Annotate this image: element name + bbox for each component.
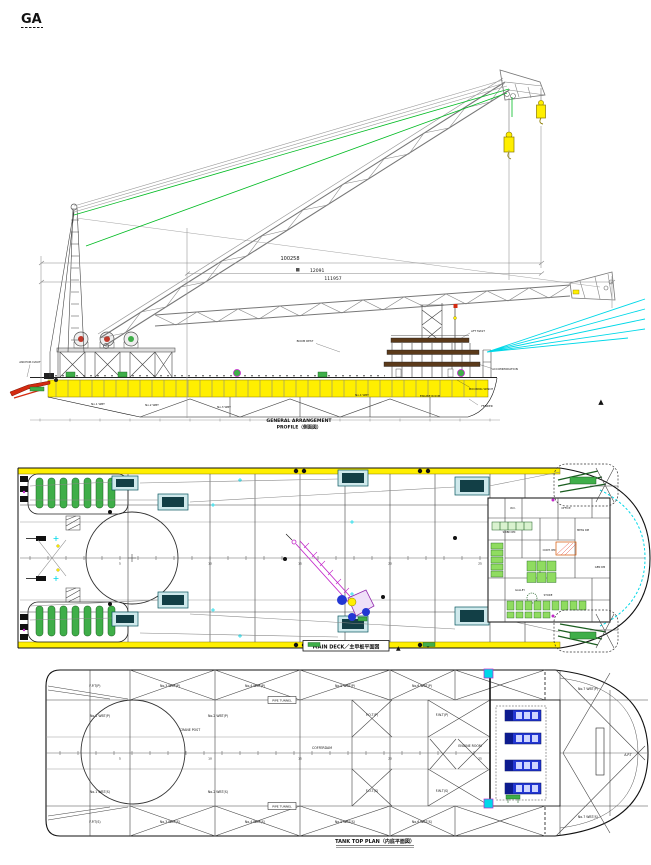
callout-anchor: ANCHOR DAVIT	[19, 360, 41, 364]
genset-icon	[505, 760, 541, 771]
room-label: OFFICE	[561, 506, 571, 510]
station-number: 10	[208, 757, 212, 761]
profile-caption-line2: PROFILE（側面図）	[277, 424, 322, 431]
winch-unit-icon	[112, 476, 138, 490]
tank-label: No.7 WBT(P)	[578, 687, 598, 691]
tank-label: No.3 WBT(S)	[160, 820, 180, 824]
callout-accom: ACCOMMODATION	[492, 367, 518, 371]
tank-label: No.1 WBT(S)	[90, 790, 110, 794]
hull-label-5: ENGINE ROOM	[420, 394, 441, 398]
room-label: W.C.	[510, 506, 516, 510]
tank-label: F.W.T(P)	[436, 713, 449, 717]
dim-overall-label: 111957	[324, 276, 341, 282]
tank-label: ENGINE ROOM	[458, 744, 481, 748]
dim-mid-label: 12091	[310, 268, 324, 274]
callout-fender: FENDER	[481, 404, 492, 408]
vent-box-icon	[484, 799, 493, 808]
tank-label: F.W.T(S)	[436, 789, 449, 793]
hull-label-3: No.3 WBT	[217, 405, 231, 409]
callout-winch: MOORING WINCH	[469, 387, 493, 391]
tank-label: CRANE POST	[180, 728, 200, 732]
station-number: 20	[388, 562, 392, 566]
winch-unit-icon	[338, 470, 368, 486]
hull-label-1: No.1 WBT	[91, 402, 105, 406]
callout-mast: AFT MAST	[471, 329, 485, 333]
ga-drawing-canvas: GA	[0, 0, 651, 865]
warning-triangle-icon: ▲	[396, 645, 401, 652]
tank-label: COFFERDAM	[312, 746, 332, 750]
capstan-icon	[458, 370, 465, 377]
drawing-title: GA	[21, 12, 43, 28]
genset-icon	[505, 783, 541, 794]
winch-unit-icon	[112, 612, 138, 626]
vent-box-icon	[484, 669, 493, 678]
room-label: GALLEY	[515, 588, 525, 592]
tank-label: No.7 WBT(S)	[578, 815, 598, 819]
pipe-tunnel-label: PIPE TUNNEL	[272, 805, 292, 809]
pipe-tunnel-label: PIPE TUNNEL	[272, 699, 292, 703]
deckhouse-plan: W.C. SWBD RM CONT. RM OFFICE MESS RM GEN…	[488, 498, 610, 622]
dim-total-label: 100258	[280, 256, 299, 262]
station-number: 15	[298, 562, 302, 566]
tank-caption-text: TANK TOP PLAN（内底平面図）	[335, 838, 415, 845]
ga-drawing-page: GA	[0, 0, 651, 865]
hull-label-4: No.4 WBT	[355, 393, 369, 397]
tank-label: No.4 WBT(P)	[245, 684, 265, 688]
tank-label: No.6 WBT(S)	[412, 820, 432, 824]
winch-unit-icon	[455, 477, 489, 495]
tank-label: No.6 WBT(P)	[412, 684, 432, 688]
profile-caption-line1: GENERAL ARRANGEMENT	[266, 418, 332, 424]
mast-flag-icon	[454, 304, 458, 308]
station-number: 10	[208, 562, 212, 566]
tank-label: F.O.T(S)	[366, 789, 378, 793]
hull-label-2: No.2 WBT	[145, 403, 159, 407]
tank-label: No.2 WBT(P)	[208, 714, 228, 718]
tank-label: F.P.T(P)	[89, 684, 100, 688]
tank-label: No.1 WBT(P)	[90, 714, 110, 718]
tank-label: A.P.T	[624, 753, 632, 757]
callout-boom-rest: BOOM REST	[297, 339, 314, 343]
tank-label: No.2 WBT(S)	[208, 790, 228, 794]
room-label: CONT. RM	[543, 548, 556, 552]
room-label: SWBD RM	[503, 530, 516, 534]
tank-label: No.3 WBT(P)	[160, 684, 180, 688]
tank-label: F.O.T(P)	[366, 713, 378, 717]
room-label: MESS RM	[577, 528, 589, 532]
tank-label: No.5 WBT(P)	[335, 684, 355, 688]
genset-icon	[505, 733, 541, 744]
tank-label: No.5 WBT(S)	[335, 820, 355, 824]
station-number: 15	[298, 757, 302, 761]
station-number: 20	[388, 757, 392, 761]
winch-unit-icon	[158, 494, 188, 510]
tank-label: F.P.T(S)	[89, 820, 100, 824]
deck-caption-text: MAIN DECK／主甲板平面図	[313, 643, 380, 650]
page-title: GA	[21, 12, 42, 27]
tank-label: No.4 WBT(S)	[245, 820, 265, 824]
station-number: 5	[119, 562, 121, 566]
station-number: 5	[119, 757, 121, 761]
room-label: GEN RM	[595, 565, 605, 569]
genset-icon	[505, 710, 541, 721]
station-number: 25	[478, 562, 482, 566]
winch-unit-icon	[158, 592, 188, 608]
winch-unit-icon	[455, 607, 489, 625]
room-label: STORE	[544, 593, 553, 597]
battery-rack-icon	[491, 543, 503, 577]
draft-mark-triangle-icon: ▲	[598, 398, 604, 406]
